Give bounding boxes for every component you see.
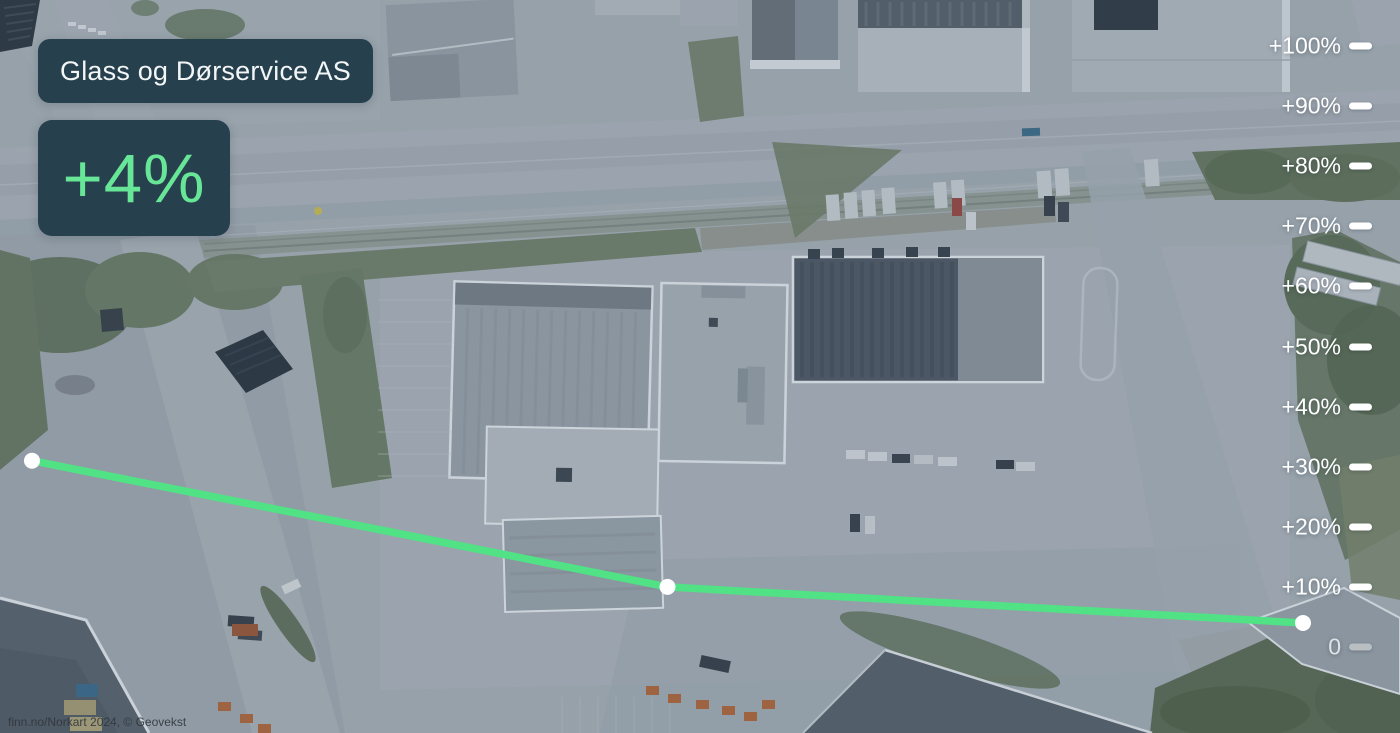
percent-change-badge: +4%	[38, 120, 230, 236]
trend-line-chart	[0, 0, 1400, 733]
company-name: Glass og Dørservice AS	[60, 56, 351, 87]
trend-markers	[24, 453, 1311, 631]
trend-line	[32, 461, 1303, 623]
data-point-marker	[1295, 615, 1311, 631]
data-point-marker	[660, 579, 676, 595]
company-name-badge: Glass og Dørservice AS	[38, 39, 373, 103]
map-attribution: finn.no/Norkart 2024, © Geovekst	[8, 715, 186, 729]
data-point-marker	[24, 453, 40, 469]
percent-change-value: +4%	[62, 139, 205, 218]
share-image: +100%+90%+80%+70%+60%+50%+40%+30%+20%+10…	[0, 0, 1400, 733]
